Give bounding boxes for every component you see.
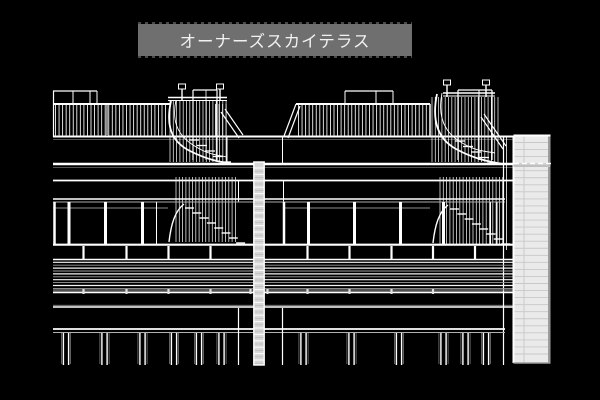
elevator-shaft xyxy=(514,136,552,364)
louver-band xyxy=(53,262,513,294)
spandrel-panel-band xyxy=(53,245,513,260)
ladder-column xyxy=(254,162,264,365)
window-row xyxy=(53,136,507,365)
screenshot-root: オーナーズスカイテラス xyxy=(0,0,600,400)
building-elevation-drawing xyxy=(0,0,600,400)
roof-railing-right xyxy=(284,104,430,138)
ground-floor-doors xyxy=(53,308,505,365)
